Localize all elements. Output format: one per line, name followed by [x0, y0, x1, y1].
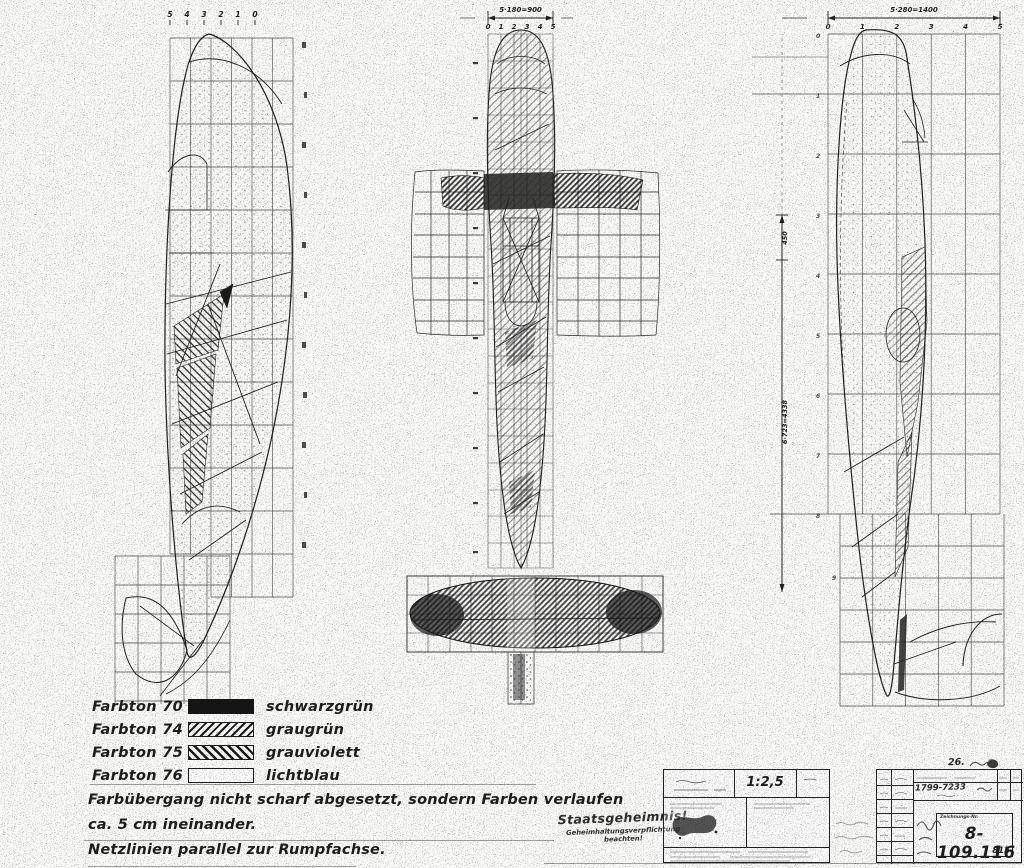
divider-rule	[84, 840, 554, 841]
tick-label: 0	[486, 23, 491, 31]
title-block-scribbles	[664, 770, 831, 864]
farbton-74-color-name: graugrün	[266, 722, 344, 738]
painting-notes: Farbübergang nicht scharf abgesetzt, son…	[88, 792, 623, 867]
arrow-left-icon	[828, 16, 835, 21]
legend-row-farbton-70: Farbton 70 schwarzgrün	[92, 695, 374, 718]
date-annotation: 26.	[948, 757, 965, 769]
tick-label: 3	[525, 23, 530, 31]
arrow-left-icon	[488, 16, 495, 21]
faint-manufacturer-text	[832, 814, 878, 864]
tick-label: 2	[894, 23, 899, 31]
title-block-right-box: 1799-7233 Zeichnungs-Nr. 8-109.116 815	[876, 769, 1022, 863]
color-legend: Farbton 70 schwarzgrün Farbton 74 graugr…	[92, 695, 374, 787]
title-block-left-box: 1:2,5	[663, 769, 830, 863]
tick-label: 2	[218, 10, 223, 19]
row-number: 3	[816, 213, 820, 220]
right-fuselage-side-view: 5·280=1400 0 1 2 3 4 5 450 6·723=43	[752, 2, 1024, 718]
tick-label: 5	[167, 10, 172, 19]
tick-label: 2	[512, 23, 517, 31]
width-dimension: 5·280=1400	[782, 6, 1000, 24]
row-number: 6	[816, 393, 820, 400]
row-number: 7	[816, 453, 821, 460]
farbton-75-label: Farbton 75	[92, 745, 188, 761]
scanned-camouflage-drawing: 5 4 3 2 1 0	[0, 0, 1024, 868]
farbton-74-swatch	[188, 722, 254, 737]
tick-label: 1	[860, 23, 865, 31]
farbton-74-label: Farbton 74	[92, 722, 188, 738]
divider-rule	[88, 866, 356, 867]
note-line-2: ca. 5 cm ineinander.	[88, 817, 623, 842]
row-number: 8	[816, 513, 820, 520]
arrow-down-icon	[780, 584, 785, 592]
row-number: 5	[816, 333, 820, 340]
farbton-75-color-name: grauviolett	[266, 745, 360, 761]
left-fuselage-side-view: 5 4 3 2 1 0	[90, 4, 340, 710]
row-number: 1	[816, 93, 820, 100]
width-dimension: 5·180=900	[460, 6, 573, 24]
farbton-76-label: Farbton 76	[92, 768, 188, 784]
vertical-dimension-total-label: 6·723=4338	[781, 399, 789, 444]
left-edge-dashes	[473, 62, 478, 553]
tick-label: 1	[499, 23, 504, 31]
farbton-76-color-name: lichtblau	[266, 768, 340, 784]
column-ruler-ticks: 5 4 3 2 1 0	[167, 10, 257, 25]
divider-rule	[90, 784, 536, 785]
tick-label: 1	[235, 10, 240, 19]
farbton-70-label: Farbton 70	[92, 699, 188, 715]
tick-label: 0	[826, 23, 831, 31]
farbton-70-color-name: schwarzgrün	[266, 699, 374, 715]
tailwheel-and-rudder	[894, 614, 1002, 700]
tick-label: 5	[551, 23, 556, 31]
row-number-labels: 0 1 2 3 4 5 6 7 8 9	[816, 33, 836, 582]
tick-label: 5	[998, 23, 1003, 31]
arrow-right-icon	[546, 16, 553, 21]
stamp-blob	[673, 815, 717, 836]
row-number: 0	[816, 33, 820, 40]
date-scribble	[968, 756, 1002, 772]
vertical-dimension: 450 6·723=4338	[776, 38, 789, 592]
title-block-scribbles	[877, 770, 1023, 864]
tick-label: 3	[929, 23, 934, 31]
tick-label: 4	[184, 10, 189, 19]
row-number-smudges	[302, 42, 307, 548]
arrow-right-icon	[993, 16, 1000, 21]
row-number: 2	[816, 153, 820, 160]
farbton-76-swatch	[188, 768, 254, 783]
farbton-75-swatch	[188, 745, 254, 760]
row-number: 9	[832, 575, 836, 582]
arrow-up-icon	[780, 215, 785, 223]
tick-label: 3	[201, 10, 206, 19]
horizontal-stabilizer	[407, 576, 663, 652]
legend-row-farbton-75: Farbton 75 grauviolett	[92, 741, 374, 764]
tick-label: 4	[963, 23, 968, 31]
fin-tip-tab	[508, 652, 534, 704]
fuselage-planform	[487, 30, 554, 568]
vertical-dimension-segment-label: 450	[781, 231, 789, 245]
width-dimension-label: 5·280=1400	[890, 6, 938, 14]
width-dimension-label: 5·180=900	[499, 6, 542, 14]
column-ruler-ticks: 0 1 2 3 4 5	[826, 23, 1003, 31]
tick-label: 4	[538, 23, 543, 31]
row-number: 4	[816, 273, 820, 280]
note-line-1: Farbübergang nicht scharf abgesetzt, son…	[88, 792, 623, 817]
tick-label: 0	[252, 10, 257, 19]
middle-fuselage-top-view: 5·180=900 0 1 2 3 4 5	[405, 2, 667, 718]
farbton-70-swatch	[188, 699, 254, 714]
legend-row-farbton-74: Farbton 74 graugrün	[92, 718, 374, 741]
